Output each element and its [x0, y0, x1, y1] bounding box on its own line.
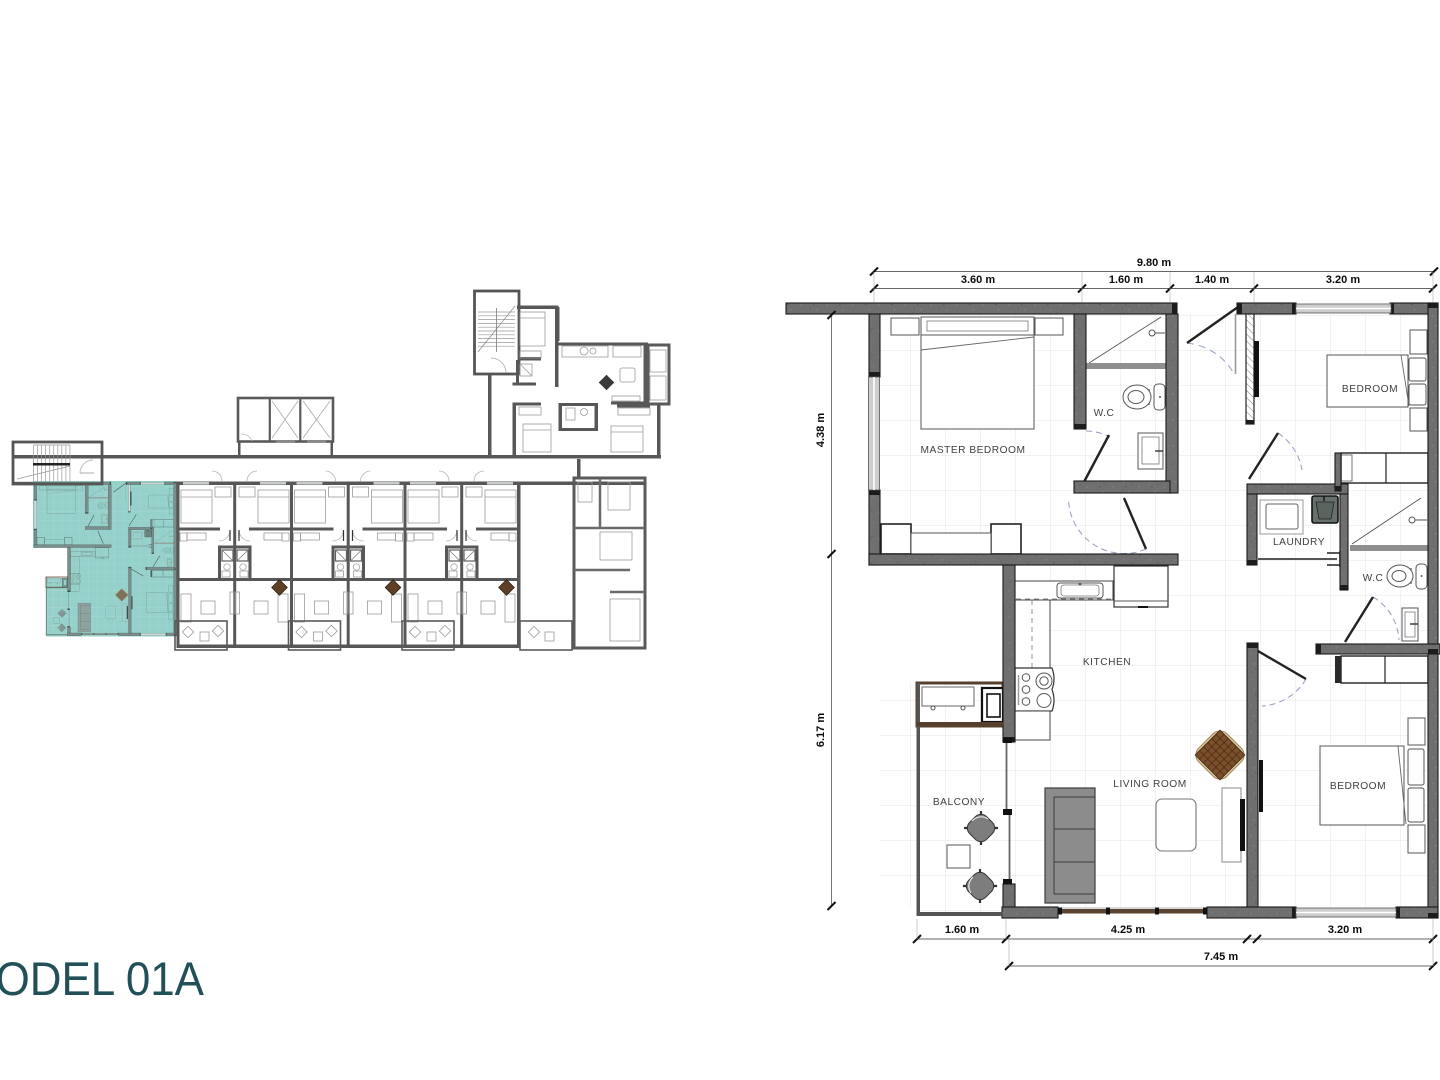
svg-text:7.45 m: 7.45 m [1204, 951, 1238, 963]
svg-text:3.20 m: 3.20 m [1328, 924, 1362, 936]
svg-text:KITCHEN: KITCHEN [1083, 657, 1131, 668]
svg-text:W.C: W.C [1094, 408, 1115, 419]
svg-text:BALCONY: BALCONY [933, 797, 985, 808]
svg-text:3.20 m: 3.20 m [1326, 274, 1360, 286]
svg-text:1.40 m: 1.40 m [1195, 274, 1229, 286]
svg-text:9.80 m: 9.80 m [1137, 257, 1171, 269]
svg-text:4.25 m: 4.25 m [1111, 924, 1145, 936]
svg-text:3.60 m: 3.60 m [961, 274, 995, 286]
svg-text:LAUNDRY: LAUNDRY [1273, 537, 1325, 548]
svg-text:1.60 m: 1.60 m [1109, 274, 1143, 286]
svg-text:LIVING ROOM: LIVING ROOM [1113, 779, 1186, 790]
svg-text:BEDROOM: BEDROOM [1342, 384, 1398, 395]
svg-text:6.17 m: 6.17 m [815, 713, 827, 747]
svg-text:BEDROOM: BEDROOM [1330, 781, 1386, 792]
svg-text:1.60 m: 1.60 m [945, 924, 979, 936]
svg-text:MODEL 01A: MODEL 01A [0, 952, 205, 1005]
svg-text:W.C: W.C [1363, 573, 1384, 584]
svg-text:4.38 m: 4.38 m [815, 413, 827, 447]
svg-text:MASTER BEDROOM: MASTER BEDROOM [921, 445, 1026, 456]
